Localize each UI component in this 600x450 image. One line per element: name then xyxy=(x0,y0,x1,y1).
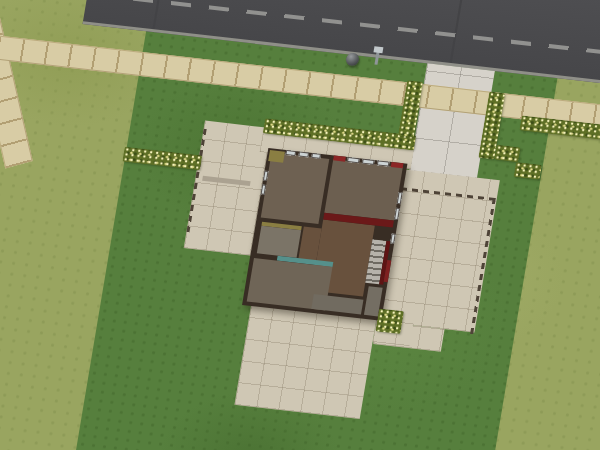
lot-view xyxy=(0,0,600,450)
hedge-step[interactable] xyxy=(494,145,520,163)
scene xyxy=(0,0,600,450)
hedge-step[interactable] xyxy=(514,162,542,180)
room-nw-floor[interactable] xyxy=(261,152,330,224)
mailbox[interactable] xyxy=(373,46,383,53)
window xyxy=(311,153,321,159)
hedge-accent[interactable] xyxy=(375,309,404,335)
room-ne-floor[interactable] xyxy=(324,159,402,220)
window xyxy=(298,151,309,157)
room-west-floor[interactable] xyxy=(257,226,301,258)
patio-south[interactable] xyxy=(234,302,376,419)
wall-olive xyxy=(268,150,285,163)
window xyxy=(285,150,296,156)
